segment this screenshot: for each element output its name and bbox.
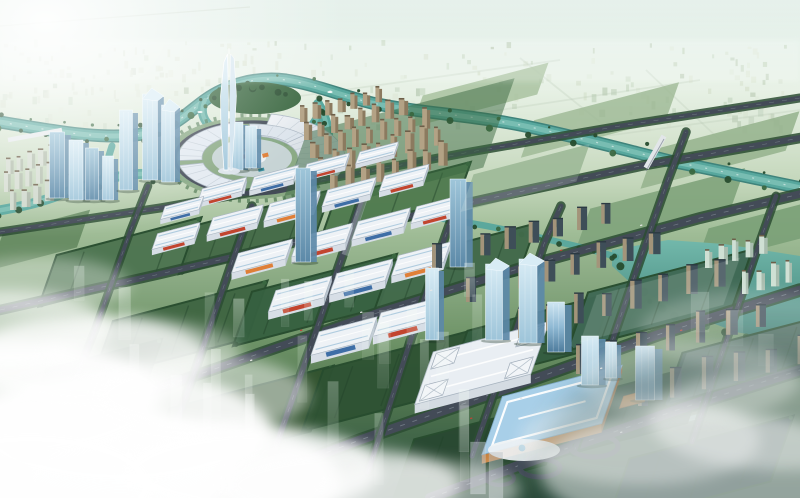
tree [725, 176, 732, 183]
distant-block [728, 98, 733, 103]
tree [728, 162, 731, 165]
tan-tower-roof [408, 116, 412, 118]
tan-tower [746, 241, 751, 257]
ghost-tower [437, 332, 449, 392]
ghost-tower [472, 295, 481, 348]
ghost-tower [459, 389, 469, 451]
tower-face [519, 259, 537, 343]
distant-block [420, 88, 426, 95]
tan-tower-roof [757, 270, 762, 272]
tan-tower-side [412, 119, 415, 132]
tower-face [486, 264, 503, 340]
tree [609, 150, 616, 157]
slab-roof [544, 260, 555, 261]
tower-face [450, 179, 466, 267]
tan-tower-roof [719, 244, 725, 246]
slab-body [578, 294, 584, 324]
tan-tower-roof [746, 240, 751, 242]
slab-body [533, 222, 539, 243]
slab-roof [630, 279, 642, 280]
tan-tower [380, 120, 384, 139]
tan-tower-side [404, 101, 408, 115]
slab-body [605, 204, 611, 224]
slab-lit-face [601, 204, 604, 224]
slab-body [557, 219, 563, 236]
tan-tower-side [390, 102, 394, 118]
tan-tower [420, 127, 425, 150]
slab-lit-face [570, 254, 574, 274]
tower-side [537, 262, 545, 343]
slab-roof [529, 221, 539, 222]
slab-roof [606, 340, 617, 341]
tan-tower-roof [705, 249, 709, 251]
slab-roof [480, 233, 490, 234]
ghost-tower [362, 312, 373, 359]
tan-tower-roof [420, 125, 425, 127]
sun-glare [0, 0, 380, 270]
slab-lit-face [544, 261, 548, 282]
slab-roof [570, 253, 579, 254]
tan-tower-side [398, 121, 401, 136]
tan-tower-side [775, 265, 779, 287]
ghost-tower [345, 271, 354, 307]
slab-lit-face [649, 233, 653, 254]
tan-tower-roof [422, 107, 427, 109]
tan-tower [759, 236, 764, 254]
tan-tower [757, 272, 762, 290]
tan-tower-roof [434, 127, 438, 129]
slab-body [509, 227, 516, 249]
slab-body [436, 244, 442, 268]
tan-tower-roof [380, 119, 384, 121]
slab-lit-face [577, 208, 581, 230]
tan-tower-side [426, 110, 430, 129]
tan-tower [786, 261, 790, 282]
slab-roof [649, 232, 661, 233]
tree [762, 185, 767, 190]
tan-tower-side [424, 128, 428, 149]
slab-roof [623, 237, 634, 238]
ghost-tower [378, 323, 389, 388]
distant-block [631, 82, 634, 87]
slab-body [484, 234, 490, 255]
tan-tower-side [789, 263, 792, 283]
slab-lit-face [480, 234, 484, 255]
tan-tower [705, 251, 709, 268]
tower-side [565, 305, 572, 352]
tan-tower-roof [742, 270, 746, 272]
slab-lit-face [597, 242, 601, 268]
tree [616, 262, 624, 270]
tree [392, 254, 396, 258]
tan-tower [771, 263, 776, 286]
distant-block [750, 93, 755, 97]
ghost-tower [407, 306, 417, 344]
tan-tower-roof [759, 235, 764, 237]
tan-tower-side [384, 122, 387, 140]
slab-roof [574, 292, 584, 293]
tan-tower [385, 101, 390, 119]
tree [645, 142, 649, 146]
ghost-tower [464, 263, 474, 296]
slab-roof [686, 264, 697, 265]
tan-tower-roof [392, 159, 396, 161]
tower-face [548, 302, 565, 352]
slab-roof [658, 274, 668, 275]
slab-roof [577, 207, 587, 208]
tan-tower-roof [732, 239, 736, 241]
tan-tower-roof [438, 140, 444, 142]
tan-tower-side [761, 273, 765, 290]
tree [570, 140, 577, 147]
tan-tower [732, 240, 736, 261]
ghost-tower [233, 299, 244, 337]
slab-lit-face [623, 239, 627, 261]
tan-tower [438, 142, 444, 166]
slab-lit-face [576, 345, 580, 374]
tan-tower-roof [391, 134, 395, 136]
cloud [580, 340, 800, 420]
distant-block [781, 91, 784, 97]
slab-body [574, 254, 580, 274]
slab-lit-face [553, 219, 557, 236]
slab-roof [553, 218, 563, 219]
slab-lit-face [574, 294, 578, 324]
slab-lit-face [505, 227, 509, 249]
tree [472, 225, 477, 230]
slab-body [600, 242, 606, 268]
tan-tower-roof [786, 260, 790, 262]
tan-tower-roof [394, 118, 398, 120]
tree [548, 126, 550, 128]
tan-tower-roof [771, 262, 776, 264]
tan-tower [408, 118, 412, 132]
slab-roof [597, 241, 607, 242]
slab-lit-face [432, 244, 436, 268]
slab-body [653, 233, 660, 254]
scene-svg [0, 0, 800, 498]
distant-block [708, 89, 711, 94]
tree [763, 171, 766, 174]
aerial-city-render [0, 0, 800, 498]
tan-tower-side [764, 238, 768, 254]
slab-roof [432, 243, 442, 244]
slab-lit-face [529, 222, 533, 243]
tan-tower-side [750, 243, 754, 258]
slab-roof [601, 203, 610, 204]
distant-block [393, 94, 398, 100]
slab-body [627, 239, 634, 261]
tan-tower-roof [405, 130, 411, 132]
tower-side [503, 267, 510, 340]
tower-side [439, 271, 444, 340]
tree [689, 169, 695, 175]
tan-tower [399, 99, 405, 115]
slab-body [549, 261, 556, 282]
distant-block [395, 87, 400, 91]
distant-block [416, 88, 420, 96]
tree [262, 280, 266, 284]
tree [556, 241, 562, 247]
ghost-tower [304, 281, 312, 320]
tan-tower-roof [407, 149, 412, 151]
tan-tower-roof [423, 150, 428, 152]
tan-tower-side [443, 143, 447, 166]
cloud [40, 320, 240, 380]
ghost-tower [420, 339, 429, 408]
slab-roof [714, 259, 725, 260]
slab-roof [505, 226, 516, 227]
ghost-tower [281, 279, 289, 327]
tan-tower [434, 128, 438, 146]
tan-tower [394, 119, 398, 136]
tower-face [426, 268, 439, 340]
tree [496, 227, 501, 232]
tan-tower-roof [399, 98, 405, 100]
tree [609, 255, 614, 260]
tan-tower-roof [385, 100, 390, 102]
slab-body [581, 208, 587, 230]
distant-block [745, 87, 749, 92]
